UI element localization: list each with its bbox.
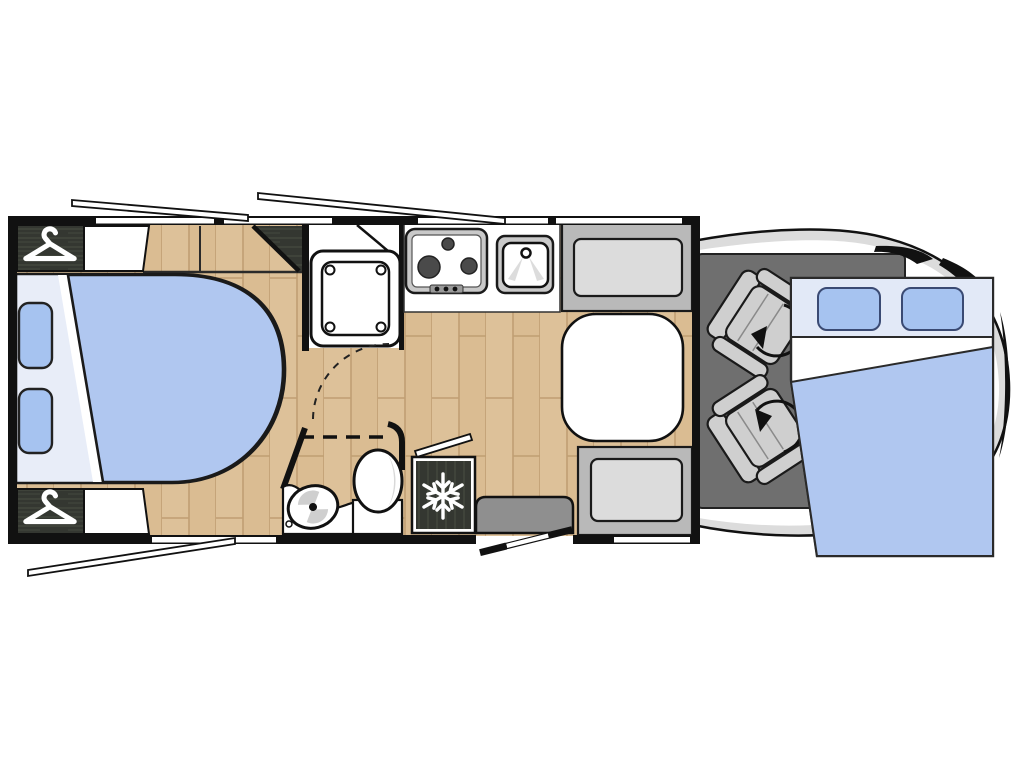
drop-down-cab-bed <box>791 278 993 556</box>
floorplan-canvas <box>0 0 1024 768</box>
rear-bed-duvet <box>68 275 283 482</box>
wardrobe-top <box>17 225 84 271</box>
shower-wall-left <box>302 224 309 351</box>
dinette-table <box>562 314 683 441</box>
shower-jet <box>326 323 335 332</box>
cab-bed-duvet <box>791 347 993 556</box>
habitation <box>8 193 700 576</box>
dinette <box>562 223 692 535</box>
bedside-panel-top <box>84 226 149 271</box>
shower <box>308 224 400 348</box>
fridge-freezer <box>412 457 475 533</box>
burner-large <box>418 256 440 278</box>
stove <box>406 229 487 293</box>
pillow <box>19 303 52 368</box>
burner-medium <box>461 258 477 274</box>
wall-right <box>692 216 700 544</box>
kitchen <box>404 224 560 312</box>
burner-small <box>442 238 454 250</box>
pillow <box>818 288 880 330</box>
entry-step <box>476 497 573 533</box>
drain <box>286 521 292 527</box>
wardrobe-bottom <box>17 489 84 534</box>
pillow <box>19 389 52 453</box>
window <box>614 537 690 543</box>
floorplan-svg <box>0 0 1024 768</box>
shower-jet <box>377 266 386 275</box>
shower-jet <box>326 266 335 275</box>
bench-cushion <box>574 239 682 296</box>
faucet-icon <box>522 249 531 258</box>
cab <box>693 230 1009 556</box>
rear-bed <box>16 274 285 483</box>
shower-jet <box>377 323 386 332</box>
window <box>556 218 682 224</box>
pillow <box>902 288 963 330</box>
wall-left <box>8 216 17 544</box>
kitchen-sink <box>497 236 553 293</box>
bench-cushion <box>591 459 682 521</box>
window <box>96 218 214 224</box>
bedside-panel-bottom <box>84 489 149 534</box>
